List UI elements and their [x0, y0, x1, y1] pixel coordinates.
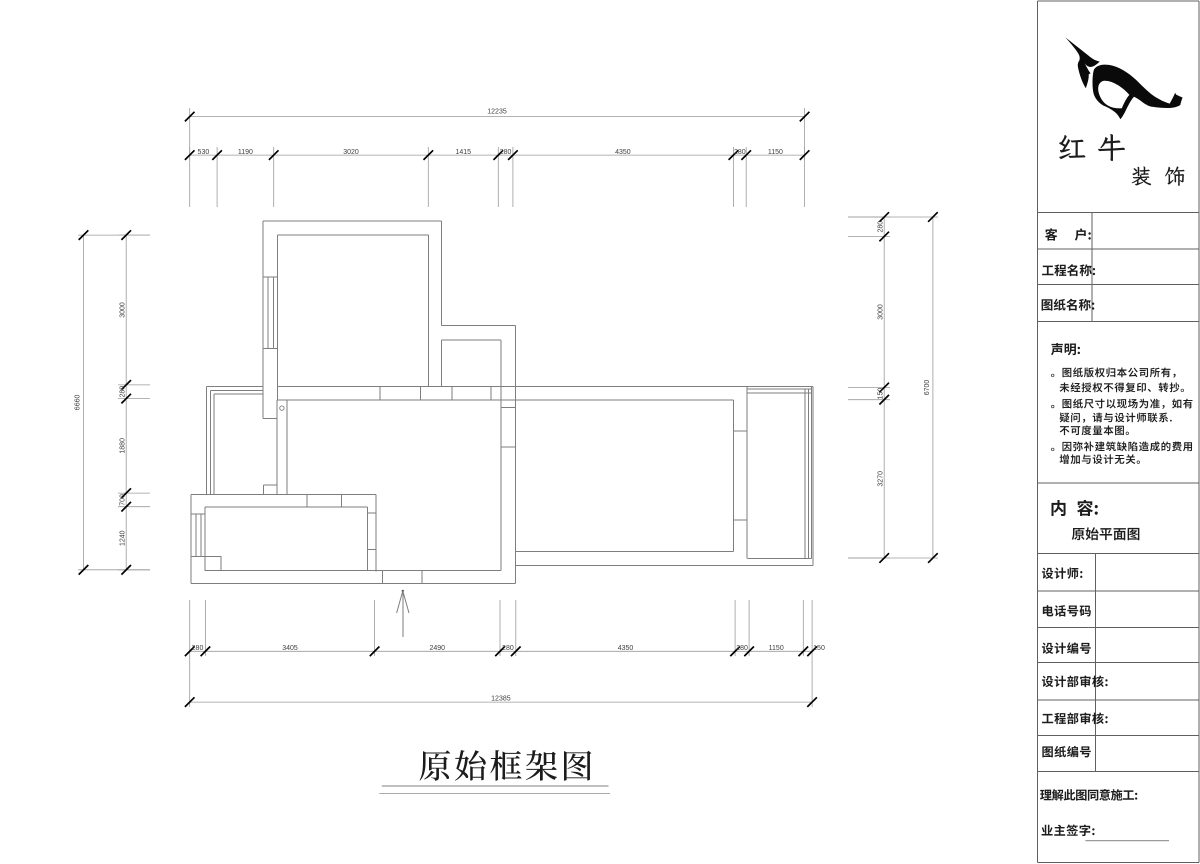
svg-text:3000: 3000: [877, 304, 884, 320]
svg-text:2490: 2490: [430, 645, 446, 652]
svg-text:3020: 3020: [343, 149, 359, 156]
svg-text:150: 150: [813, 645, 825, 652]
svg-text:280: 280: [502, 645, 514, 652]
svg-text:280: 280: [734, 149, 746, 156]
svg-text:150: 150: [877, 388, 884, 400]
svg-text:4350: 4350: [615, 149, 631, 156]
svg-text:12385: 12385: [491, 695, 511, 702]
svg-text:280: 280: [877, 221, 884, 233]
svg-text:1415: 1415: [456, 149, 472, 156]
svg-text:530: 530: [198, 149, 210, 156]
svg-text:6660: 6660: [75, 395, 82, 411]
svg-text:3270: 3270: [877, 471, 884, 487]
svg-text:12235: 12235: [487, 109, 507, 116]
svg-text:280: 280: [736, 645, 748, 652]
svg-text:1150: 1150: [769, 645, 784, 652]
svg-text:1880: 1880: [120, 438, 127, 454]
svg-text:1240: 1240: [120, 530, 127, 546]
svg-text:280: 280: [192, 645, 204, 652]
svg-text:6700: 6700: [924, 380, 931, 396]
svg-text:280: 280: [120, 386, 127, 398]
svg-text:3405: 3405: [282, 645, 298, 652]
svg-text:1190: 1190: [238, 149, 253, 156]
svg-text:700: 700: [120, 494, 127, 506]
svg-text:4350: 4350: [618, 645, 634, 652]
svg-text:280: 280: [500, 149, 512, 156]
svg-text:3000: 3000: [120, 302, 127, 318]
svg-text:1150: 1150: [768, 149, 783, 156]
